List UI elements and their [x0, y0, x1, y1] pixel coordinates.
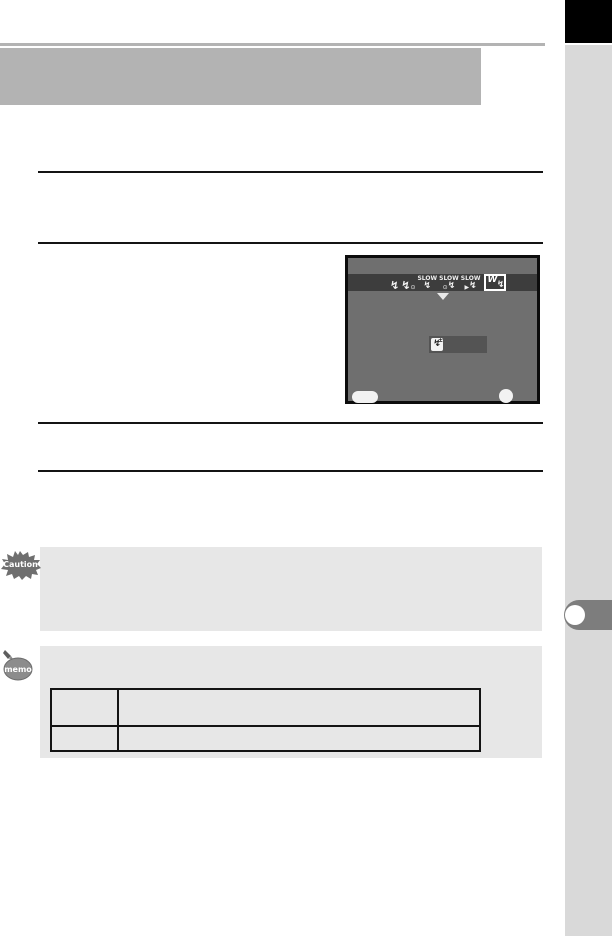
- flash-bolt-icon: ↯: [401, 280, 410, 291]
- memo-table-cell: [118, 689, 480, 726]
- memo-table-cell: [51, 689, 118, 726]
- chapter-sidebar: [565, 45, 612, 936]
- caution-badge-label: Caution: [3, 560, 38, 569]
- flash-mode-bar: ↯ ↯ ⊙ SLOW ↯ SLOW ⊙ ↯ SLOW: [348, 274, 537, 291]
- slow-speed-sync-icon: SLOW ↯: [417, 274, 437, 291]
- corner-black-block: [565, 0, 612, 43]
- ok-button-dot: [499, 389, 513, 403]
- top-gray-rule: [0, 43, 545, 46]
- camera-lcd-screenshot: ↯ ↯ ⊙ SLOW ↯ SLOW ⊙ ↯ SLOW: [345, 255, 540, 404]
- memo-icon: memo: [2, 649, 36, 681]
- menu-button-pill: [352, 391, 378, 403]
- memo-note-box: [40, 646, 542, 758]
- section-rule-2: [38, 242, 543, 244]
- flash-bolt-icon: ↯: [448, 282, 456, 291]
- plus-minus-icon: ±: [438, 337, 443, 344]
- wireless-mode-icon-selected: W ↯: [484, 274, 506, 291]
- chapter-tab: [564, 600, 612, 630]
- flash-compensation-value-box: ↯ ±: [429, 336, 487, 353]
- memo-badge-label: memo: [4, 665, 32, 674]
- caution-icon: Caution: [1, 550, 41, 580]
- memo-table-cell: [118, 726, 480, 751]
- section-rule-4: [38, 470, 543, 472]
- flash-bolt-icon: ↯: [390, 280, 399, 291]
- flash-on-icon: ↯: [390, 274, 399, 291]
- red-eye-icon: ⊙: [410, 285, 415, 291]
- flash-exposure-compensation-icon: ↯ ±: [431, 338, 443, 351]
- flash-bolt-icon: ↯: [424, 282, 432, 291]
- section-rule-3: [38, 422, 543, 424]
- flash-on-red-eye-icon: ↯ ⊙: [401, 274, 415, 291]
- trailing-curtain-sync-icon: SLOW ▶ ↯: [461, 274, 481, 291]
- memo-table-cell: [51, 726, 118, 751]
- caution-note-box: [40, 547, 542, 631]
- slow-speed-sync-red-eye-icon: SLOW ⊙ ↯: [439, 274, 459, 291]
- chapter-number-dot: [565, 605, 585, 625]
- chapter-header-band: [0, 48, 481, 105]
- wireless-w-label: W: [487, 276, 497, 285]
- flash-bolt-icon: ↯: [469, 282, 477, 291]
- memo-table: [50, 688, 481, 752]
- manual-page: ↯ ↯ ⊙ SLOW ↯ SLOW ⊙ ↯ SLOW: [0, 0, 612, 936]
- flash-bolt-icon: ↯: [497, 281, 505, 290]
- section-rule-1: [38, 171, 543, 173]
- selection-pointer-triangle: [437, 293, 449, 300]
